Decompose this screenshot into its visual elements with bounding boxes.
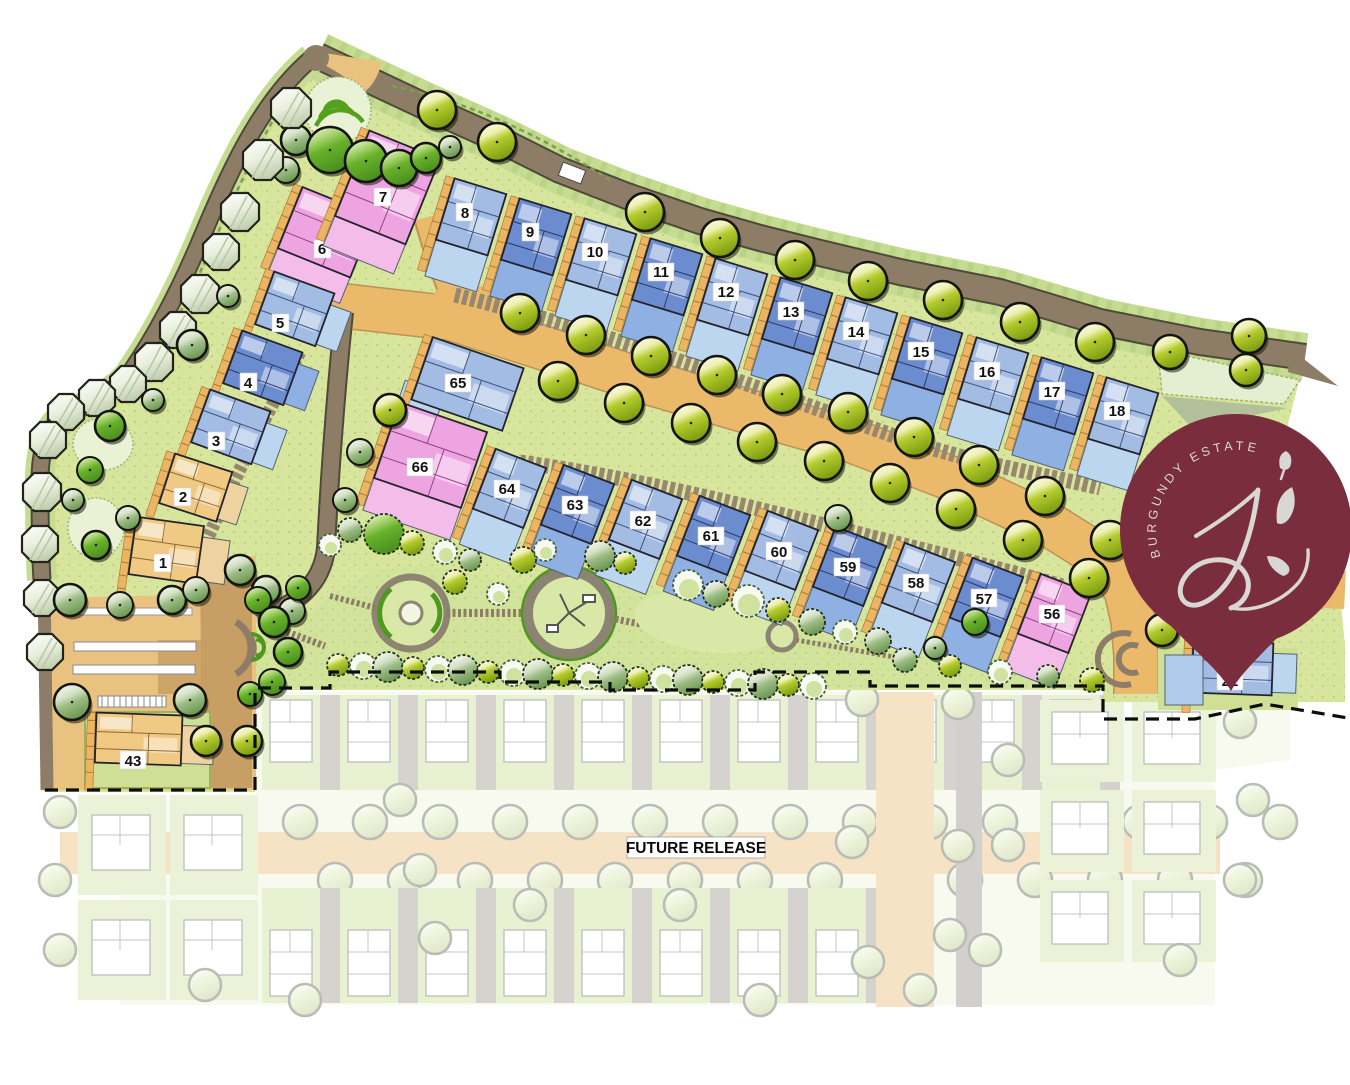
svg-text:63: 63 [567, 497, 584, 514]
svg-text:57: 57 [976, 591, 993, 608]
svg-text:58: 58 [908, 575, 925, 592]
svg-text:16: 16 [979, 364, 996, 381]
svg-text:17: 17 [1044, 384, 1061, 401]
svg-text:2: 2 [179, 489, 187, 506]
svg-text:11: 11 [653, 264, 669, 281]
svg-text:14: 14 [848, 324, 865, 341]
svg-text:18: 18 [1109, 403, 1126, 420]
svg-text:56: 56 [1044, 606, 1061, 623]
svg-text:5: 5 [276, 315, 284, 332]
svg-text:12: 12 [718, 284, 735, 301]
svg-text:61: 61 [703, 528, 720, 545]
svg-text:4: 4 [244, 375, 253, 392]
svg-text:1: 1 [159, 555, 167, 572]
svg-text:15: 15 [913, 344, 930, 361]
svg-text:8: 8 [461, 205, 469, 222]
svg-text:9: 9 [526, 224, 534, 241]
svg-text:66: 66 [412, 459, 429, 476]
svg-text:13: 13 [783, 304, 800, 321]
svg-text:43: 43 [125, 753, 142, 770]
svg-text:10: 10 [587, 244, 604, 261]
svg-text:3: 3 [212, 433, 220, 450]
svg-text:7: 7 [379, 189, 387, 206]
svg-text:60: 60 [771, 544, 788, 561]
svg-text:64: 64 [499, 481, 516, 498]
svg-text:65: 65 [450, 375, 467, 392]
svg-text:FUTURE RELEASE: FUTURE RELEASE [626, 840, 766, 857]
svg-text:62: 62 [635, 513, 652, 530]
svg-text:59: 59 [840, 559, 857, 576]
